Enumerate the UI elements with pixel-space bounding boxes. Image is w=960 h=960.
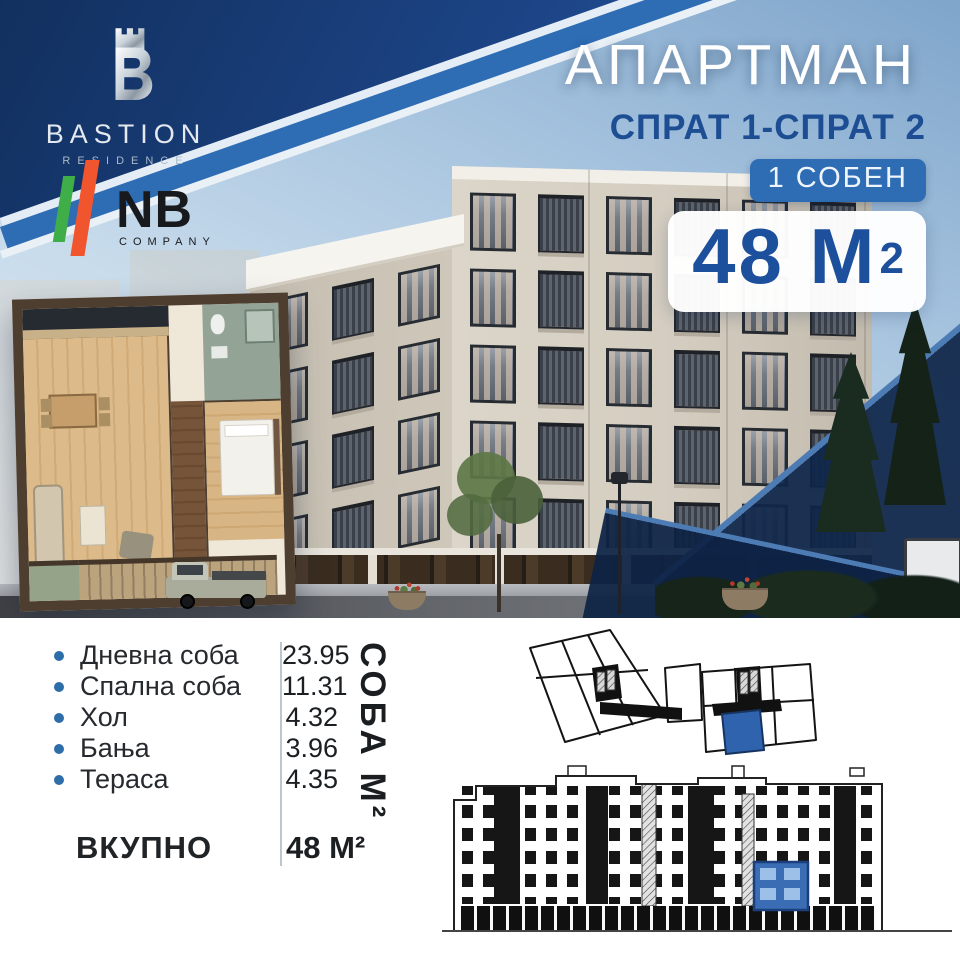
room-row: Бања 3.96 [40,733,338,764]
sofa [33,484,65,569]
offer-floors: СПРАТ 1-СПРАТ 2 [610,108,926,148]
elevation-diagram [436,754,960,960]
hallway [171,401,209,562]
bed [219,419,275,496]
pickup-truck [166,562,272,610]
window [470,192,516,251]
bushes [655,548,960,618]
room-label: Дневна соба [80,640,268,671]
flower-pot [388,580,426,610]
dining-table [48,393,97,428]
coffee-table [79,505,106,546]
street-tree [443,446,555,616]
dot-icon [54,713,64,723]
dot-icon [54,682,64,692]
room-label: Спална соба [80,671,268,702]
bathroom [202,303,281,403]
offer-type-badge: 1 СОБЕН [750,159,926,202]
total-label: ВКУПНО [76,830,212,866]
window [398,264,440,327]
room-label: Бања [80,733,268,764]
total-value: 48 М² [286,830,365,866]
window [398,412,440,475]
window [398,338,440,401]
window [470,268,516,327]
nb-title: NB [116,180,193,240]
nb-company-logo: NB COMPANY [56,160,276,260]
offer-area-value: 48 М [692,212,877,300]
siteplan-highlighted-unit [722,710,764,754]
dot-icon [54,744,64,754]
offer-area-panel: 48 М2 [668,211,926,312]
room-row: Спална соба 11.31 [40,671,338,702]
offer-title: АПАРТМАН [565,32,918,98]
bastion-logo: BASTION RESIDENCE [40,18,212,167]
room-value: 3.96 [268,733,338,764]
offer-block: АПАРТМАН СПРАТ 1-СПРАТ 2 1 СОБЕН 48 М2 [565,32,926,312]
room-value: 4.32 [268,702,338,733]
window [470,344,516,403]
rooms-axis-label: СОБА М² [352,642,392,821]
room-row: Дневна соба 23.95 [40,640,338,671]
room-row: Тераса 4.35 [40,764,338,795]
bastion-title: BASTION [40,119,212,150]
room-value: 11.31 [268,671,338,702]
room-row: Хол 4.32 [40,702,338,733]
siteplan-diagram [450,620,930,772]
flyer: BASTION RESIDENCE NB COMPANY АПАРТМАН СП… [0,0,960,960]
nb-subtitle: COMPANY [119,236,216,248]
street-lamp [610,472,628,614]
window [742,352,788,411]
window [606,348,652,407]
balcony [332,278,374,341]
elevation-highlighted-unit [754,862,808,910]
castle-tower-icon [98,18,154,112]
window [398,486,440,549]
room-value: 4.35 [268,764,338,795]
room-value: 23.95 [268,640,338,671]
balcony [332,352,374,415]
room-label: Хол [80,702,268,733]
armchair [119,530,155,561]
dot-icon [54,775,64,785]
balcony [332,426,374,489]
offer-area-sup: 2 [880,234,904,283]
lawn [29,560,80,601]
balcony [674,426,720,485]
room-list: Дневна соба 23.95 Спална соба 11.31 Хол … [40,640,338,795]
bedroom [205,401,285,541]
kitchen-counter [22,306,169,340]
balcony [538,346,584,405]
balcony [674,350,720,409]
room-label: Тераса [80,764,268,795]
list-divider [280,642,282,866]
dot-icon [54,651,64,661]
building-photo: BASTION RESIDENCE NB COMPANY АПАРТМАН СП… [0,0,960,618]
flower-pot [722,574,768,610]
info-section: Дневна соба 23.95 Спална соба 11.31 Хол … [0,618,960,960]
